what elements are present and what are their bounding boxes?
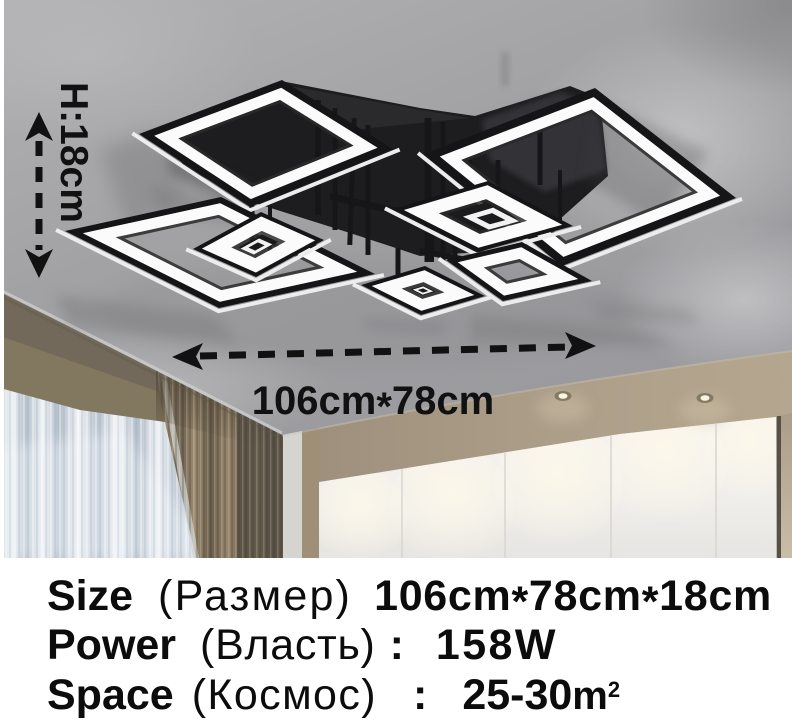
svg-text:H:18cm: H:18cm [52,82,95,223]
svg-text:106cm*78cm: 106cm*78cm [252,379,494,429]
